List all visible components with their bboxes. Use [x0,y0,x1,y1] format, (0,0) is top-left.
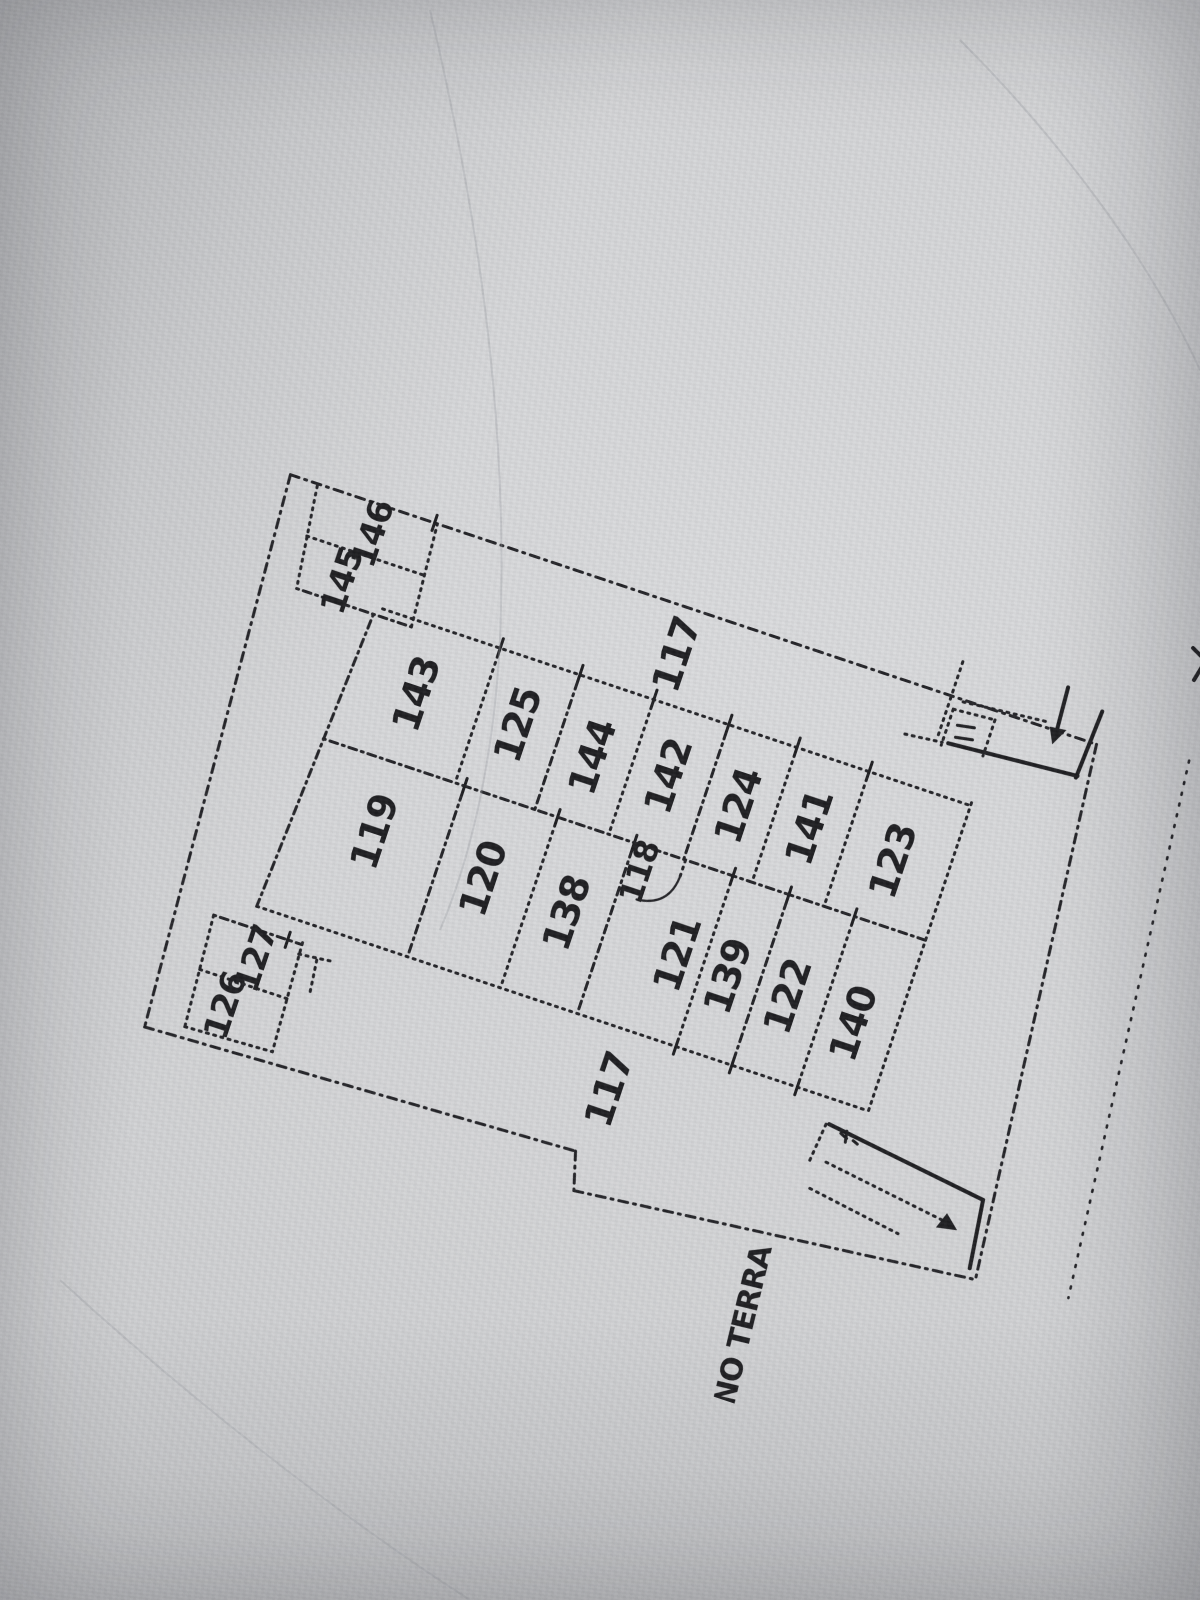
label-room-143: 143 [383,651,449,737]
label-corridor-117-top: 117 [643,611,709,697]
label-room-145: 145 [313,542,373,619]
label-room-121: 121 [644,911,710,997]
label-room-123: 123 [860,818,926,904]
label-room-140: 140 [820,980,886,1066]
label-room-120: 120 [450,836,516,922]
floorplan: 1461451171431251441421241411231191201381… [3,324,1200,1495]
entrance-top-right [905,643,1106,791]
entry-arrow-top [1054,687,1071,731]
label-room-126: 126 [196,967,256,1044]
paper-photo: 1461451171431251441421241411231191201381… [0,0,1200,1600]
floorplan-svg: 1461451171431251441421241411231191201381… [3,324,1200,1495]
label-room-118: 118 [611,836,667,909]
label-room-144: 144 [559,714,625,800]
label-room-124: 124 [705,763,771,849]
label-room-119: 119 [341,789,407,875]
paper-edge-mark [1184,648,1200,682]
lot-boundary-lines [104,461,1200,1350]
label-plan-title: PIANO TERRA [695,1241,780,1462]
label-room-139: 139 [695,933,761,1019]
label-room-138: 138 [534,870,600,956]
room-labels: 1461451171431251441421241411231191201381… [96,491,983,1465]
label-room-141: 141 [776,784,842,870]
label-room-125: 125 [485,682,551,768]
label-room-142: 142 [635,733,701,819]
entry-arrow-bottom [820,1162,954,1223]
label-corridor-117-bottom: 117 [576,1046,642,1132]
